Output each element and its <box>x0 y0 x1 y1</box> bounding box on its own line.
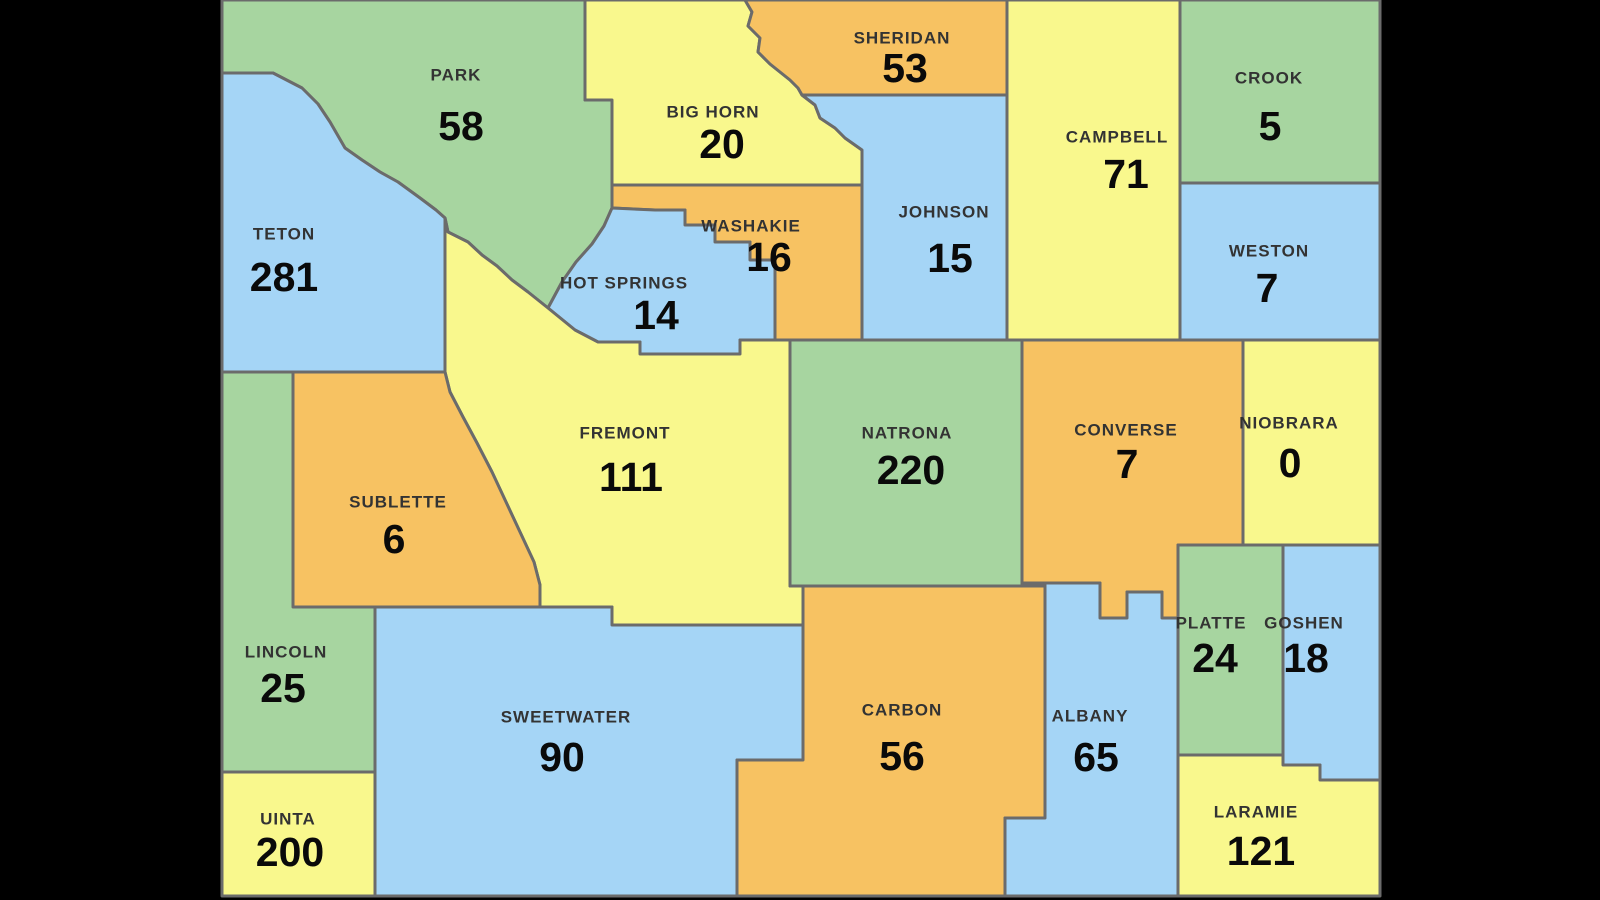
county-label-natrona: NATRONA <box>862 423 953 442</box>
county-value-sublette: 6 <box>383 516 406 562</box>
county-label-hot-springs: HOT SPRINGS <box>560 273 688 292</box>
county-value-goshen: 18 <box>1283 635 1329 681</box>
county-label-crook: CROOK <box>1235 68 1303 87</box>
county-value-sweetwater: 90 <box>539 734 585 780</box>
county-shape-niobrara <box>1243 340 1380 545</box>
county-label-johnson: JOHNSON <box>898 202 989 221</box>
county-label-converse: CONVERSE <box>1074 420 1177 439</box>
county-value-washakie: 16 <box>746 234 792 280</box>
county-value-hot-springs: 14 <box>633 292 679 338</box>
county-value-platte: 24 <box>1192 635 1238 681</box>
county-label-uinta: UINTA <box>260 809 316 828</box>
county-label-washakie: WASHAKIE <box>701 216 801 235</box>
county-shape-campbell <box>1007 0 1180 340</box>
county-value-natrona: 220 <box>877 447 945 493</box>
county-shape-crook <box>1180 0 1380 183</box>
county-value-johnson: 15 <box>927 235 973 281</box>
county-shape-weston <box>1180 183 1380 340</box>
county-value-park: 58 <box>438 103 484 149</box>
county-value-niobrara: 0 <box>1279 440 1302 486</box>
county-label-big-horn: BIG HORN <box>667 102 760 121</box>
county-value-crook: 5 <box>1259 103 1282 149</box>
county-value-weston: 7 <box>1256 265 1279 311</box>
county-value-fremont: 111 <box>599 454 663 500</box>
county-label-albany: ALBANY <box>1052 706 1129 725</box>
county-label-lincoln: LINCOLN <box>245 642 328 661</box>
county-value-big-horn: 20 <box>699 121 745 167</box>
county-label-goshen: GOSHEN <box>1264 613 1344 632</box>
county-label-teton: TETON <box>253 224 315 243</box>
county-label-sublette: SUBLETTE <box>349 492 447 511</box>
county-label-laramie: LARAMIE <box>1214 802 1298 821</box>
county-label-niobrara: NIOBRARA <box>1239 413 1339 432</box>
wyoming-county-map: PARK58BIG HORN20SHERIDAN53CAMPBELL71CROO… <box>0 0 1600 900</box>
county-label-fremont: FREMONT <box>579 423 670 442</box>
county-value-campbell: 71 <box>1103 151 1149 197</box>
county-value-converse: 7 <box>1116 441 1139 487</box>
county-layer <box>222 0 1380 896</box>
county-value-carbon: 56 <box>879 733 925 779</box>
county-value-teton: 281 <box>250 254 318 300</box>
county-value-sheridan: 53 <box>882 45 928 91</box>
county-label-park: PARK <box>431 65 482 84</box>
county-label-sweetwater: SWEETWATER <box>501 707 632 726</box>
county-value-uinta: 200 <box>256 829 324 875</box>
county-value-laramie: 121 <box>1227 828 1295 874</box>
county-label-platte: PLATTE <box>1176 613 1247 632</box>
county-label-carbon: CARBON <box>862 700 943 719</box>
county-value-lincoln: 25 <box>260 665 306 711</box>
county-label-campbell: CAMPBELL <box>1066 127 1168 146</box>
county-label-weston: WESTON <box>1229 241 1309 260</box>
county-value-albany: 65 <box>1073 734 1119 780</box>
screenshot-root: PARK58BIG HORN20SHERIDAN53CAMPBELL71CROO… <box>0 0 1600 900</box>
